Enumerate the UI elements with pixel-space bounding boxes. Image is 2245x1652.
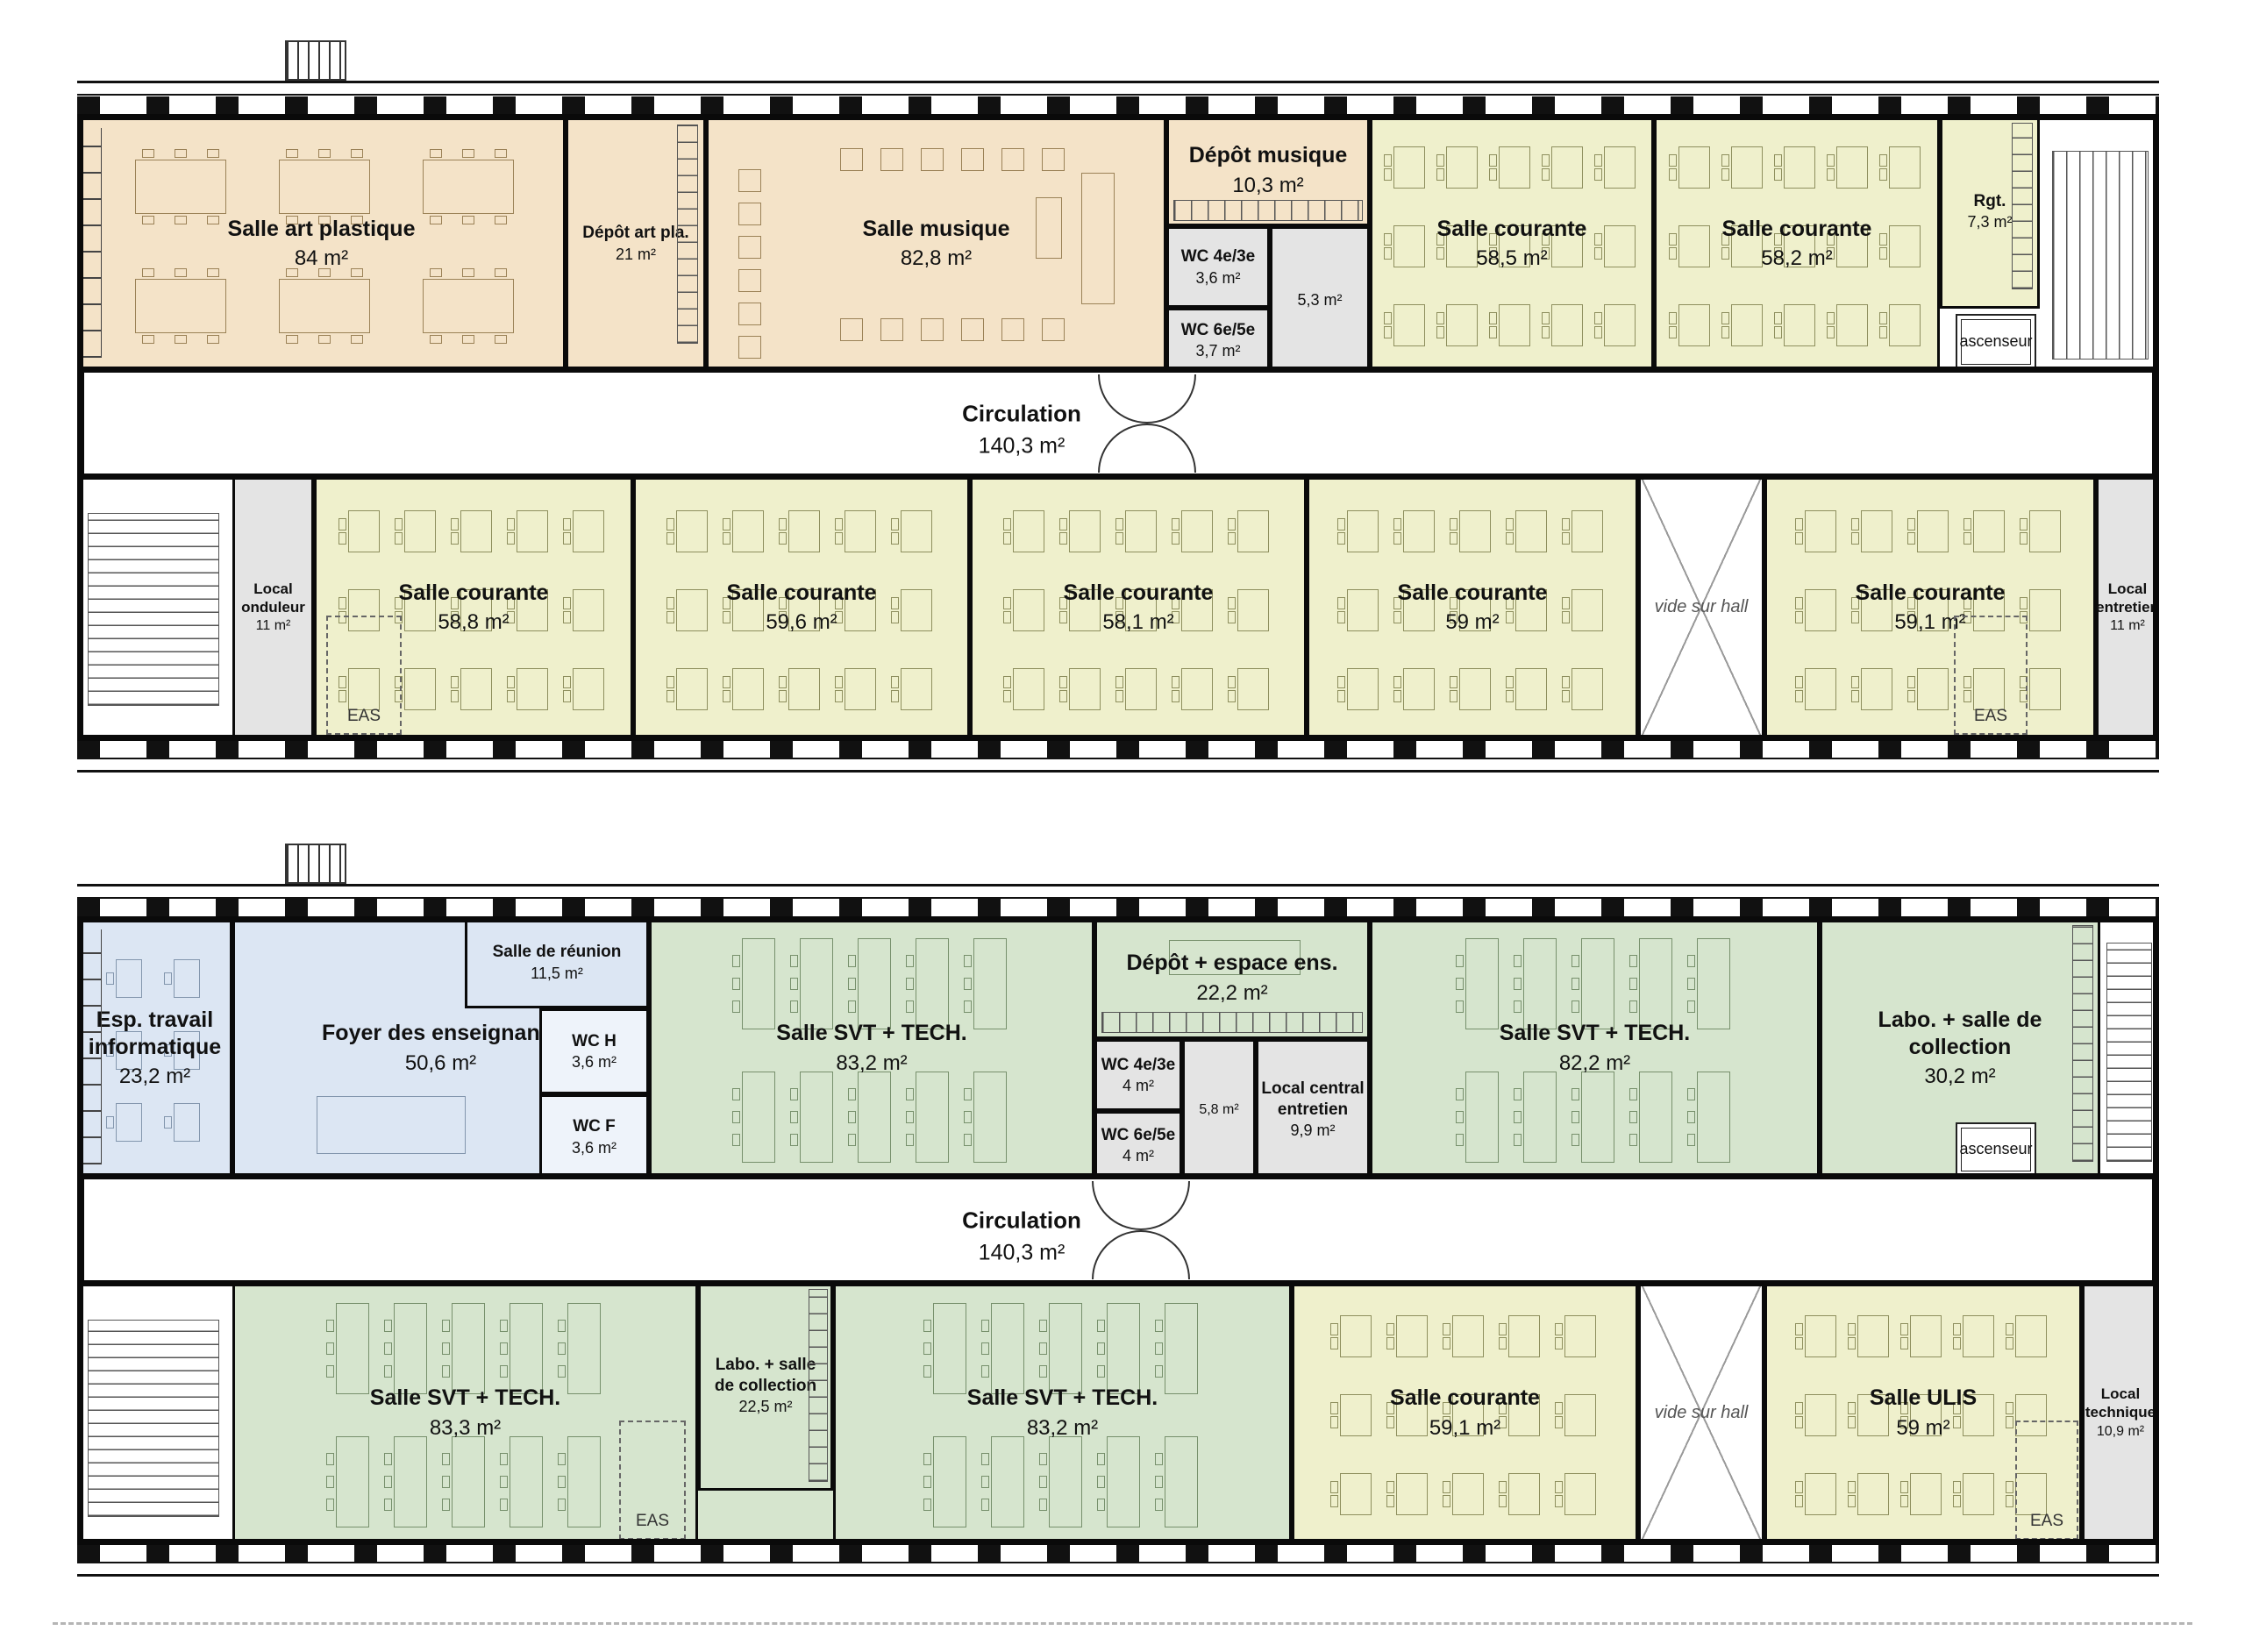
desk-icon — [1036, 197, 1062, 259]
room-salle-courante-58-1: Salle courante58,1 m² — [970, 474, 1307, 741]
chair-icon — [1386, 1402, 1394, 1414]
desk-icon — [1604, 225, 1636, 267]
chair-icon — [1594, 247, 1602, 260]
chair-icon — [1450, 518, 1457, 530]
chair-icon — [790, 1134, 798, 1146]
chair-icon — [923, 1342, 931, 1355]
chair-icon — [164, 1116, 172, 1129]
chair-icon — [1506, 676, 1514, 688]
desk-icon — [845, 510, 876, 552]
chair-icon — [351, 216, 363, 224]
room-area-label: 22,5 m² — [738, 1398, 792, 1416]
room-area-label: 21 m² — [616, 246, 656, 264]
desk-icon — [1910, 1473, 1942, 1515]
chair-icon — [1172, 597, 1180, 609]
room-label: 5,8 m² — [1185, 1042, 1253, 1177]
desk-icon — [1857, 1315, 1889, 1357]
window-strip-icon — [81, 929, 102, 1164]
desk-icon — [1551, 146, 1583, 189]
chair-icon — [738, 236, 761, 259]
desk-icon — [460, 510, 492, 552]
desk-icon — [1396, 1315, 1428, 1357]
chair-icon — [1514, 1111, 1522, 1123]
room-area-label: 3,6 m² — [572, 1053, 616, 1072]
desk-icon — [423, 279, 514, 333]
chair-icon — [1774, 154, 1782, 167]
chair-icon — [1542, 312, 1550, 324]
chair-icon — [723, 690, 731, 702]
chair-icon — [142, 149, 154, 158]
chair-icon — [1386, 1495, 1394, 1507]
desk-icon — [1639, 938, 1672, 1029]
chair-icon — [1562, 690, 1570, 702]
chair-icon — [2006, 1323, 2013, 1335]
desk-icon — [800, 1072, 833, 1163]
chair-icon — [1687, 955, 1695, 967]
chair-icon — [1443, 1416, 1450, 1428]
room-area-label: 3,6 m² — [572, 1139, 616, 1157]
chair-icon — [1542, 233, 1550, 246]
chair-icon — [207, 335, 219, 344]
chair-icon — [1003, 611, 1011, 623]
chair-icon — [835, 690, 843, 702]
desk-icon — [1452, 1315, 1484, 1357]
shelf-icon — [809, 1289, 828, 1482]
desk-icon — [567, 1436, 601, 1527]
room-label: 5,3 m² — [1272, 229, 1367, 370]
chair-icon — [558, 1499, 566, 1511]
desk-icon — [1571, 589, 1603, 631]
chair-icon — [981, 1320, 989, 1332]
desk-icon — [1564, 1315, 1596, 1357]
desk-icon — [1564, 1473, 1596, 1515]
desk-icon — [788, 589, 820, 631]
desk-icon — [2015, 1315, 2047, 1357]
desk-icon — [1784, 146, 1815, 189]
chair-icon — [923, 1365, 931, 1378]
chair-icon — [921, 148, 944, 171]
desk-icon — [135, 279, 226, 333]
desk-icon — [517, 668, 548, 710]
shelf-icon — [677, 125, 698, 344]
chair-icon — [1795, 1402, 1803, 1414]
room-area-label: 22,2 m² — [1196, 981, 1267, 1006]
desk-icon — [279, 279, 370, 333]
chair-icon — [1795, 1416, 1803, 1428]
room-local-entretien: Local entretien11 m² — [2096, 474, 2159, 741]
desk-icon — [1446, 225, 1478, 267]
desk-icon — [1347, 589, 1379, 631]
chair-icon — [1900, 1495, 1908, 1507]
chair-icon — [1514, 1088, 1522, 1100]
chair-icon — [1848, 1323, 1856, 1335]
desk-icon — [510, 1436, 543, 1527]
chair-icon — [1059, 597, 1067, 609]
chair-icon — [835, 676, 843, 688]
chair-icon — [442, 1476, 450, 1488]
desk-icon — [1347, 668, 1379, 710]
stairs-icon — [88, 513, 219, 706]
chair-icon — [1795, 1323, 1803, 1335]
room-name-label: Labo. + salle de collection — [715, 1355, 816, 1395]
room-label: Local central entretien9,9 m² — [1258, 1042, 1367, 1177]
desk-icon — [1551, 225, 1583, 267]
chair-icon — [1542, 247, 1550, 260]
chair-icon — [339, 518, 346, 530]
room-name-label: WC 6e/5e — [1181, 320, 1255, 340]
desk-icon — [1604, 146, 1636, 189]
chair-icon — [1669, 312, 1677, 324]
chair-icon — [723, 676, 731, 688]
chair-icon — [1003, 597, 1011, 609]
chair-icon — [164, 972, 172, 985]
chair-icon — [1571, 1000, 1579, 1013]
roof-access-icon — [285, 844, 346, 884]
chair-icon — [451, 690, 459, 702]
facade-top — [77, 884, 2159, 916]
chair-icon — [384, 1320, 392, 1332]
chair-icon — [1436, 233, 1444, 246]
desk-icon — [1069, 510, 1101, 552]
room-salle-courante-59-6: Salle courante59,6 m² — [633, 474, 970, 741]
room-name-label: Local onduleur — [241, 580, 305, 616]
chair-icon — [1851, 690, 1859, 702]
room-salle-musique: Salle musique82,8 m² — [706, 114, 1166, 373]
desk-icon — [1446, 304, 1478, 346]
desk-icon — [1889, 304, 1921, 346]
room-area-label: 10,9 m² — [2097, 1424, 2144, 1440]
room-name-label: Foyer des enseignants — [322, 1020, 559, 1047]
shelf-icon — [1101, 1012, 1363, 1033]
chair-icon — [2006, 1481, 2013, 1493]
chair-icon — [666, 690, 674, 702]
chair-icon — [790, 955, 798, 967]
chair-icon — [326, 1499, 334, 1511]
desk-icon — [1805, 510, 1836, 552]
desk-icon — [573, 510, 604, 552]
chair-icon — [384, 1342, 392, 1355]
facade-bottom — [77, 741, 2159, 773]
desk-icon — [452, 1436, 485, 1527]
room-area-label: 11 m² — [2110, 618, 2145, 634]
desk-icon — [1459, 589, 1491, 631]
chair-icon — [779, 597, 787, 609]
chair-icon — [1848, 1495, 1856, 1507]
chair-icon — [1443, 1481, 1450, 1493]
chair-icon — [1172, 532, 1180, 545]
desk-icon — [1963, 1473, 1994, 1515]
chair-icon — [384, 1365, 392, 1378]
room-local-onduleur: Local onduleur11 m² — [232, 474, 314, 741]
chair-icon — [1384, 326, 1392, 338]
desk-icon — [2029, 510, 2061, 552]
desk-icon — [135, 160, 226, 214]
chair-icon — [1669, 247, 1677, 260]
chair-icon — [495, 216, 507, 224]
chair-icon — [142, 335, 154, 344]
chair-icon — [1039, 1499, 1047, 1511]
chair-icon — [1795, 676, 1803, 688]
room-name-label: vide sur hall — [1655, 1402, 1749, 1423]
chair-icon — [430, 268, 442, 277]
chair-icon — [1393, 690, 1401, 702]
chair-icon — [1386, 1481, 1394, 1493]
room-name-label: ascenseur — [1959, 332, 2032, 352]
chair-icon — [1003, 532, 1011, 545]
room-name-label: Rgt. — [1974, 191, 2006, 211]
chair-icon — [462, 268, 474, 277]
chair-icon — [1499, 1402, 1507, 1414]
wall-segment — [2152, 373, 2159, 474]
chair-icon — [738, 269, 761, 292]
desk-icon — [1805, 1394, 1836, 1436]
chair-icon — [790, 1000, 798, 1013]
chair-icon — [1115, 690, 1123, 702]
desk-icon — [404, 510, 436, 552]
desk-icon — [1403, 510, 1435, 552]
chair-icon — [1330, 1402, 1338, 1414]
chair-icon — [1499, 1481, 1507, 1493]
chair-icon — [1687, 978, 1695, 990]
desk-icon — [1237, 510, 1269, 552]
door-leaf-icon — [1092, 1181, 1190, 1230]
chair-icon — [507, 518, 515, 530]
chair-icon — [175, 149, 187, 158]
desk-icon — [510, 1303, 543, 1394]
eas-zone: EAS — [1954, 616, 2028, 735]
room-salle-svt-tech-1: Salle SVT + TECH.83,2 m² — [649, 916, 1094, 1179]
chair-icon — [1827, 326, 1835, 338]
chair-icon — [1097, 1365, 1105, 1378]
room-label: WC H3,6 m² — [542, 1011, 646, 1092]
chair-icon — [507, 690, 515, 702]
chair-icon — [1851, 611, 1859, 623]
chair-icon — [2020, 597, 2028, 609]
desk-icon — [933, 1436, 966, 1527]
chair-icon — [558, 1476, 566, 1488]
chair-icon — [923, 1476, 931, 1488]
chair-icon — [1155, 1342, 1163, 1355]
chair-icon — [1001, 318, 1024, 341]
chair-icon — [738, 203, 761, 225]
desk-icon — [1857, 1394, 1889, 1436]
window-strip-icon — [81, 128, 102, 358]
chair-icon — [666, 597, 674, 609]
desk-icon — [1523, 938, 1557, 1029]
chair-icon — [384, 1453, 392, 1465]
chair-icon — [1097, 1499, 1105, 1511]
desk-icon — [732, 668, 764, 710]
room-area-label: 30,2 m² — [1924, 1065, 1995, 1089]
desk-icon — [460, 668, 492, 710]
chair-icon — [732, 1000, 740, 1013]
room-label: Esp. travail informatique23,2 m² — [80, 919, 230, 1177]
desk-icon — [1564, 1394, 1596, 1436]
chair-icon — [1384, 233, 1392, 246]
desk-icon — [1403, 668, 1435, 710]
chair-icon — [1456, 955, 1464, 967]
chair-icon — [835, 518, 843, 530]
facade-bottom — [77, 1545, 2159, 1577]
desk-icon — [404, 589, 436, 631]
room-name-label: Local technique — [2085, 1385, 2156, 1421]
chair-icon — [1097, 1453, 1105, 1465]
chair-icon — [1907, 611, 1915, 623]
chair-icon — [848, 1088, 856, 1100]
room-name-label: WC 6e/5e — [1101, 1125, 1175, 1145]
chair-icon — [1456, 1134, 1464, 1146]
room-name-label: Salle musique — [862, 216, 1009, 243]
chair-icon — [1039, 1476, 1047, 1488]
chair-icon — [1003, 518, 1011, 530]
chair-icon — [1489, 168, 1497, 181]
chair-icon — [175, 268, 187, 277]
desk-icon — [1347, 510, 1379, 552]
chair-icon — [500, 1453, 508, 1465]
desk-icon — [1805, 668, 1836, 710]
chair-icon — [1436, 312, 1444, 324]
chair-icon — [1669, 326, 1677, 338]
desk-icon — [1107, 1303, 1140, 1394]
desk-icon — [573, 668, 604, 710]
room-local-5-3: 5,3 m² — [1270, 226, 1370, 373]
chair-icon — [1900, 1416, 1908, 1428]
roof-access-icon — [285, 40, 346, 81]
floor-plan-canvas: Salle art plastique84 m²Dépôt art pla.21… — [0, 0, 2245, 1652]
chair-icon — [1571, 1134, 1579, 1146]
room-label: Local technique10,9 m² — [2085, 1283, 2156, 1542]
chair-icon — [1795, 1495, 1803, 1507]
chair-icon — [318, 216, 331, 224]
chair-icon — [563, 611, 571, 623]
chair-icon — [1172, 690, 1180, 702]
chair-icon — [1669, 154, 1677, 167]
chair-icon — [835, 532, 843, 545]
chair-icon — [779, 676, 787, 688]
room-name-label: Dépôt musique — [1189, 142, 1348, 169]
desk-icon — [174, 959, 200, 998]
chair-icon — [1555, 1402, 1563, 1414]
chair-icon — [1953, 1416, 1961, 1428]
chair-icon — [1506, 690, 1514, 702]
room-vide-sur-hall-n2: vide sur hall — [1638, 1280, 1764, 1545]
chair-icon — [1330, 1337, 1338, 1349]
chair-icon — [1774, 233, 1782, 246]
chair-icon — [351, 335, 363, 344]
chair-icon — [1115, 532, 1123, 545]
chair-icon — [500, 1320, 508, 1332]
desk-icon — [1396, 1473, 1428, 1515]
desk-icon — [732, 510, 764, 552]
desk-icon — [1731, 225, 1763, 267]
chair-icon — [1115, 518, 1123, 530]
chair-icon — [286, 149, 298, 158]
chair-icon — [906, 1000, 914, 1013]
desk-icon — [1571, 668, 1603, 710]
chair-icon — [500, 1476, 508, 1488]
room-area-label: 4 m² — [1122, 1077, 1154, 1095]
room-salle-de-reunion: Salle de réunion11,5 m² — [465, 916, 649, 1008]
chair-icon — [666, 611, 674, 623]
chair-icon — [1489, 326, 1497, 338]
desk-icon — [858, 1072, 891, 1163]
room-label: Salle de réunion11,5 m² — [467, 919, 646, 1006]
chair-icon — [1687, 1000, 1695, 1013]
desk-icon — [1165, 1303, 1198, 1394]
desk-icon — [1403, 589, 1435, 631]
chair-icon — [779, 611, 787, 623]
desk-icon — [1836, 225, 1868, 267]
chair-icon — [1228, 611, 1236, 623]
chair-icon — [507, 532, 515, 545]
double-door-icon — [1092, 1181, 1190, 1279]
chair-icon — [923, 1320, 931, 1332]
chair-icon — [507, 676, 515, 688]
chair-icon — [1499, 1416, 1507, 1428]
chair-icon — [1506, 518, 1514, 530]
chair-icon — [1907, 597, 1915, 609]
chair-icon — [981, 1342, 989, 1355]
desk-icon — [336, 1436, 369, 1527]
desk-icon — [452, 1303, 485, 1394]
chair-icon — [1097, 1342, 1105, 1355]
chair-icon — [906, 1088, 914, 1100]
chair-icon — [2020, 532, 2028, 545]
chair-icon — [1155, 1320, 1163, 1332]
desk-icon — [2029, 589, 2061, 631]
desk-icon — [1181, 510, 1213, 552]
chair-icon — [964, 1111, 972, 1123]
chair-icon — [835, 611, 843, 623]
chair-icon — [207, 149, 219, 158]
chair-icon — [430, 149, 442, 158]
chair-icon — [351, 149, 363, 158]
chair-icon — [964, 955, 972, 967]
chair-icon — [981, 1476, 989, 1488]
chair-icon — [1514, 978, 1522, 990]
desk-icon — [788, 668, 820, 710]
chair-icon — [1594, 326, 1602, 338]
boundary-dash-line — [53, 1622, 2192, 1627]
chair-icon — [1953, 1337, 1961, 1349]
chair-icon — [1721, 154, 1729, 167]
chair-icon — [790, 978, 798, 990]
chair-icon — [891, 518, 899, 530]
table-icon — [317, 1096, 466, 1154]
chair-icon — [286, 216, 298, 224]
piano-icon — [1081, 173, 1115, 304]
chair-icon — [500, 1499, 508, 1511]
desk-icon — [1499, 304, 1530, 346]
desk-icon — [423, 160, 514, 214]
chair-icon — [563, 676, 571, 688]
desk-icon — [567, 1303, 601, 1394]
chair-icon — [442, 1453, 450, 1465]
chair-icon — [1172, 518, 1180, 530]
chair-icon — [1443, 1495, 1450, 1507]
chair-icon — [395, 597, 403, 609]
chair-icon — [1953, 1481, 1961, 1493]
chair-icon — [1900, 1402, 1908, 1414]
circulation-label: Circulation140,3 m² — [962, 401, 1081, 459]
chair-icon — [961, 148, 984, 171]
chair-icon — [1879, 247, 1887, 260]
chair-icon — [1514, 955, 1522, 967]
desk-icon — [573, 589, 604, 631]
chair-icon — [2006, 1402, 2013, 1414]
chair-icon — [507, 597, 515, 609]
desk-icon — [1181, 589, 1213, 631]
